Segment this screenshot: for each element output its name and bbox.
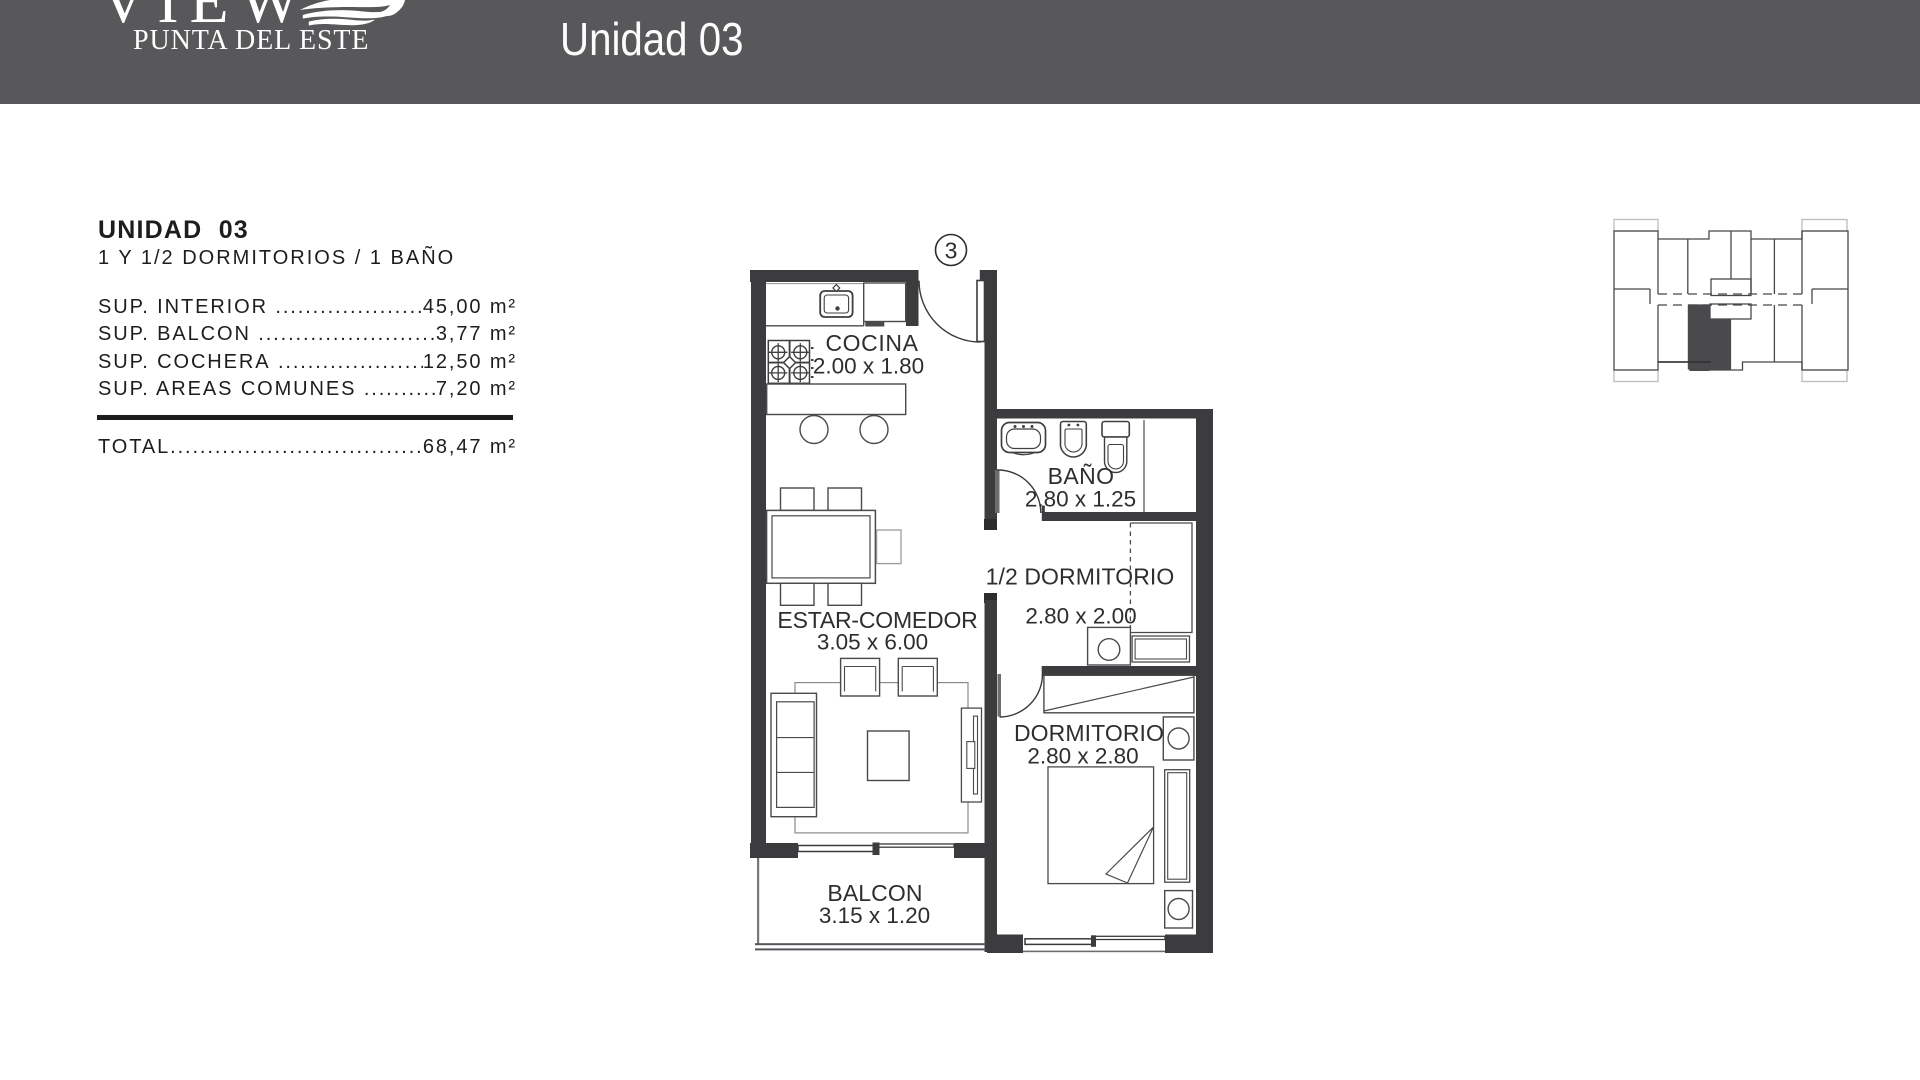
svg-text:3.15 x 1.20: 3.15 x 1.20: [819, 903, 930, 928]
svg-text:2.80 x 2.00: 2.80 x 2.00: [1025, 604, 1136, 629]
svg-text:COCINA: COCINA: [825, 330, 918, 356]
svg-text:2.80 x 1.25: 2.80 x 1.25: [1025, 487, 1136, 512]
svg-text:BAÑO: BAÑO: [1048, 463, 1115, 489]
svg-text:3: 3: [945, 238, 958, 264]
svg-text:DORMITORIO: DORMITORIO: [1014, 720, 1164, 746]
svg-text:2.80 x 2.80: 2.80 x 2.80: [1027, 744, 1138, 769]
svg-text:1/2 DORMITORIO: 1/2 DORMITORIO: [986, 564, 1175, 590]
svg-text:3.05 x 6.00: 3.05 x 6.00: [817, 630, 928, 655]
svg-text:2.00 x 1.80: 2.00 x 1.80: [813, 354, 924, 379]
